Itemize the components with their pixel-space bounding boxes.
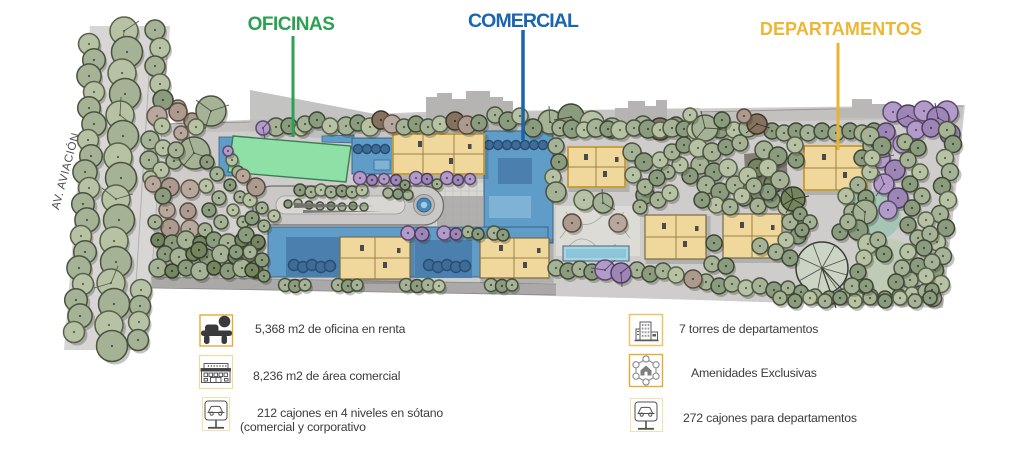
svg-text:OFICINAS: OFICINAS [248,14,335,35]
svg-text:DEPARTAMENTOS: DEPARTAMENTOS [760,19,922,39]
svg-text:7 torres de departamentos: 7 torres de departamentos [679,322,818,336]
svg-text:Amenidades Exclusivas: Amenidades Exclusivas [691,366,817,380]
svg-text:8,236 m2 de área comercial: 8,236 m2 de área comercial [253,369,400,383]
svg-text:212 cajones en 4 niveles en só: 212 cajones en 4 niveles en sótano [257,406,443,420]
svg-text:5,368 m2 de oficina en renta: 5,368 m2 de oficina en renta [255,322,406,336]
svg-text:272 cajones para departamentos: 272 cajones para departamentos [683,411,857,425]
svg-text:COMERCIAL: COMERCIAL [468,10,579,32]
svg-text:(comercial y corporativo: (comercial y corporativo [240,420,366,434]
